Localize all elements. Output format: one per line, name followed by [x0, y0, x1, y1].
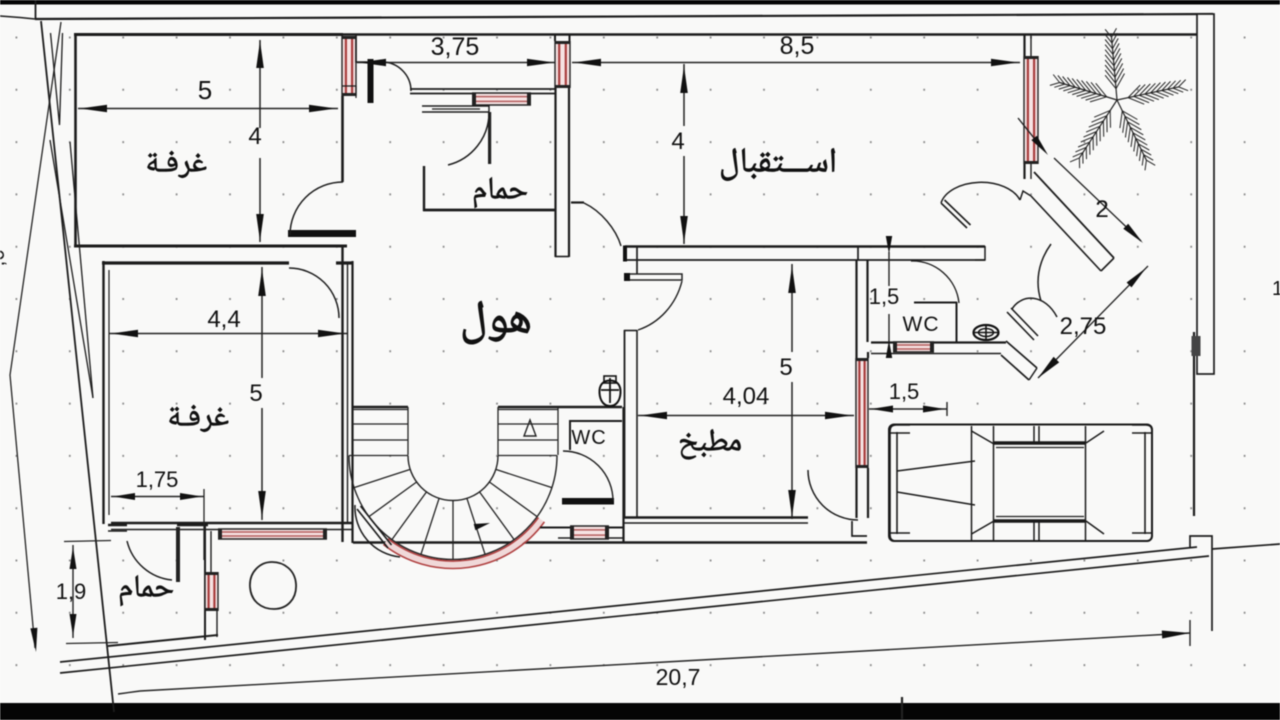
svg-text:4: 4 — [671, 128, 684, 155]
svg-text:WC: WC — [571, 427, 606, 449]
svg-text:5: 5 — [779, 354, 792, 381]
svg-text:2: 2 — [1095, 196, 1108, 223]
svg-text:1,9: 1,9 — [56, 579, 87, 604]
svg-text:1: 1 — [1272, 278, 1280, 300]
svg-text:2,75: 2,75 — [1060, 313, 1107, 340]
svg-text:20,7: 20,7 — [656, 664, 701, 690]
svg-text:5: 5 — [249, 380, 262, 407]
svg-text:3,75: 3,75 — [431, 33, 480, 61]
svg-text:1,75: 1,75 — [136, 467, 179, 492]
svg-text:1,5: 1,5 — [869, 284, 900, 309]
svg-text:4: 4 — [248, 123, 261, 150]
svg-text:8,5: 8,5 — [780, 32, 815, 60]
svg-text:4,04: 4,04 — [723, 383, 770, 410]
svg-text:5: 5 — [198, 75, 212, 105]
svg-text:4,4: 4,4 — [207, 306, 240, 333]
svg-text:1,5: 1,5 — [889, 379, 920, 404]
svg-text:,6: ,6 — [0, 250, 9, 267]
svg-text:WC: WC — [903, 313, 940, 336]
